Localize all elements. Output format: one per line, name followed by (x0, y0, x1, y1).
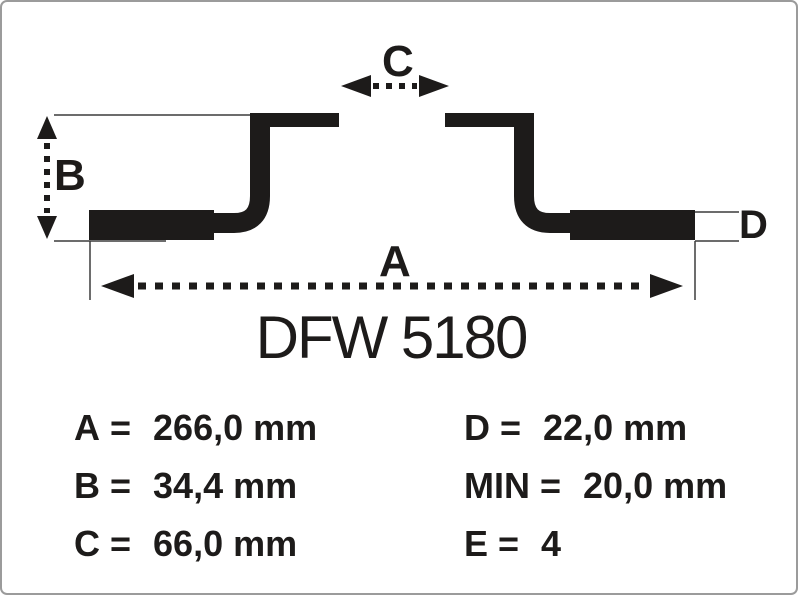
dimension-label-a: A (379, 240, 410, 284)
spec-label-min: MIN (464, 464, 530, 508)
spec-value-d: 22,0 mm (543, 406, 687, 450)
arrowhead-b-top (37, 116, 57, 139)
arrowhead-a-right (650, 274, 683, 298)
spec-equals: = (500, 406, 521, 450)
specs-column-left: A = 266,0 mm B = 34,4 mm C = 66,0 mm (74, 406, 317, 566)
spec-equals: = (110, 406, 131, 450)
spec-equals: = (110, 464, 131, 508)
spec-row-d: D = 22,0 mm (464, 406, 727, 450)
spec-equals: = (498, 522, 519, 566)
spec-label-b: B (74, 464, 100, 508)
spec-row-e: E = 4 (464, 522, 727, 566)
part-number-title: DFW 5180 (0, 308, 790, 368)
hat-wall-left (208, 113, 260, 223)
dimension-label-b: B (54, 154, 85, 198)
spec-row-a: A = 266,0 mm (74, 406, 317, 450)
spec-equals: = (110, 522, 131, 566)
brake-disc-diagram: C B A D (2, 2, 798, 312)
spec-value-e: 4 (541, 522, 561, 566)
spec-row-b: B = 34,4 mm (74, 464, 317, 508)
spec-label-e: E (464, 522, 488, 566)
friction-ring-left (89, 210, 214, 240)
arrowhead-c-left (341, 75, 371, 97)
dimension-label-d: D (739, 205, 767, 245)
spec-label-d: D (464, 406, 490, 450)
spec-equals: = (540, 464, 561, 508)
spec-label-a: A (74, 406, 100, 450)
arrowhead-a-left (101, 274, 134, 298)
arrowhead-c-right (419, 75, 449, 97)
spec-value-c: 66,0 mm (153, 522, 297, 566)
specs-column-right: D = 22,0 mm MIN = 20,0 mm E = 4 (464, 406, 727, 566)
arrowhead-b-bottom (37, 216, 57, 239)
dimension-label-c: C (382, 40, 413, 84)
spec-row-c: C = 66,0 mm (74, 522, 317, 566)
spec-row-min: MIN = 20,0 mm (464, 464, 727, 508)
disc-section (89, 113, 695, 240)
spec-value-a: 266,0 mm (153, 406, 317, 450)
spec-label-c: C (74, 522, 100, 566)
hat-wall-right (524, 113, 576, 223)
friction-ring-right (570, 210, 695, 240)
spec-value-min: 20,0 mm (583, 464, 727, 508)
spec-value-b: 34,4 mm (153, 464, 297, 508)
drawing-card: C B A D DFW 5180 A = 266,0 mm B = 34,4 m… (0, 0, 798, 595)
